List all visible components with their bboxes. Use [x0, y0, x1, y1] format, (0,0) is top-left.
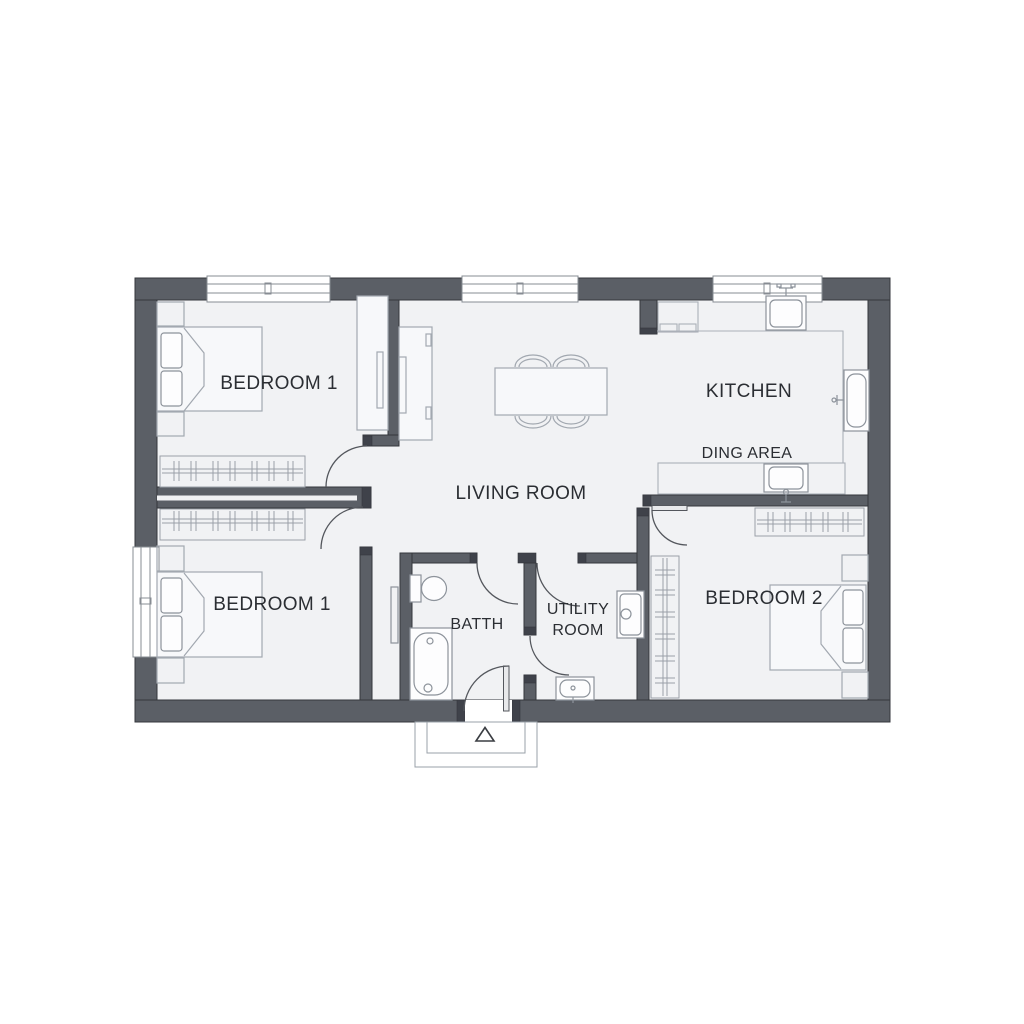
porch-outline [415, 722, 537, 767]
cabinet-icon [399, 327, 432, 440]
pillow-icon [843, 590, 863, 625]
porch-step [427, 722, 525, 753]
dining-table-icon [495, 368, 607, 415]
bathtub-icon [410, 628, 452, 700]
label-bedroom1-top: BEDROOM 1 [220, 373, 338, 395]
toilet-icon [410, 575, 447, 602]
utility-sink-icon [556, 677, 594, 703]
label-dining-area: DING AREA [702, 445, 793, 463]
pillow-icon [161, 578, 182, 613]
label-bath: BATTH [450, 616, 503, 634]
bedroom2-door-leaf [652, 506, 687, 511]
label-bedroom1-bottom: BEDROOM 1 [213, 594, 331, 616]
pillow-icon [161, 616, 182, 651]
window-left [133, 547, 159, 657]
label-kitchen: KITCHEN [706, 381, 792, 403]
pillow-icon [161, 371, 182, 406]
label-utility-line1: UTILITY [547, 600, 609, 621]
entry-door-leaf [504, 666, 510, 711]
window-top-2 [462, 276, 578, 302]
label-bedroom2: BEDROOM 2 [705, 588, 823, 610]
entry-direction-triangle-icon [476, 728, 494, 742]
pillow-icon [843, 628, 863, 663]
label-utility-room: UTILITY ROOM [547, 600, 609, 642]
pillow-icon [161, 333, 182, 368]
label-utility-line2: ROOM [547, 621, 609, 642]
label-living-room: LIVING ROOM [455, 483, 586, 505]
floor-plan-drawing [0, 0, 1024, 1024]
floor-plan-page: BEDROOM 1 KITCHEN DING AREA LIVING ROOM … [0, 0, 1024, 1024]
window-top-1 [207, 276, 330, 302]
washing-machine-icon [617, 591, 644, 638]
